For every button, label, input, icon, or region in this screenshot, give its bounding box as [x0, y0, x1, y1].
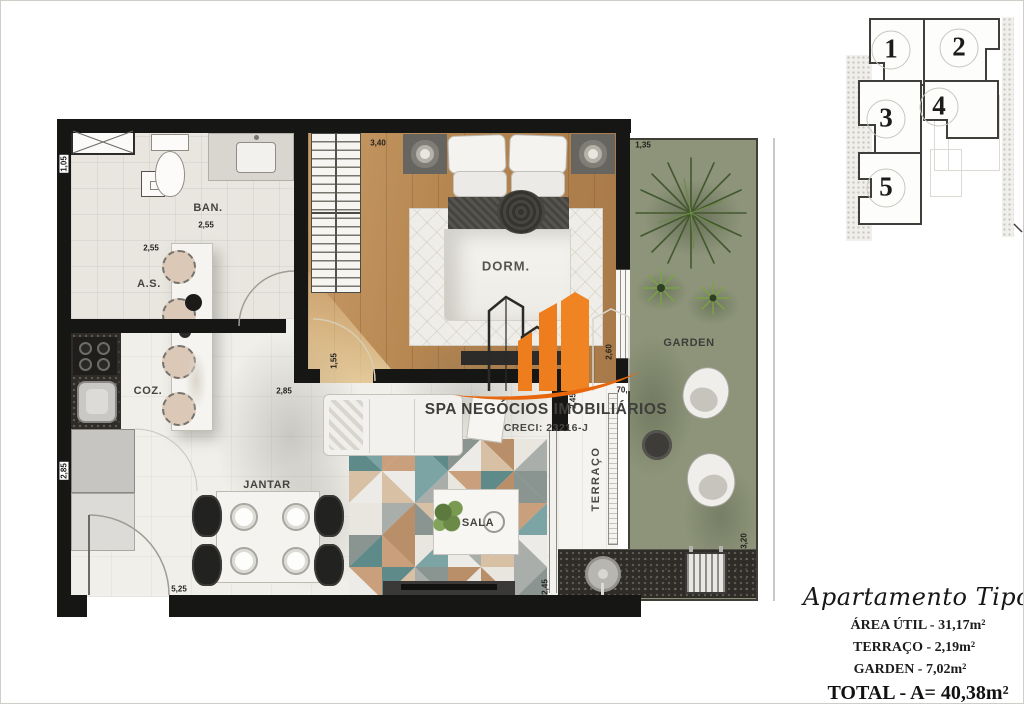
gourmet-round-sink [585, 556, 621, 592]
summary-title: Apartamento Tipo 02 - Gara [803, 583, 1024, 611]
balcony-outer-line [773, 138, 775, 601]
watermark-name: SPA NEGÓCIOS IMOBILIÁRIOS [425, 401, 667, 419]
wall-bedroom-bottom [373, 369, 558, 383]
bed-pillow [508, 134, 567, 174]
bed-pillow [447, 134, 506, 174]
refrigerator [71, 429, 135, 493]
dim-label: 3,40 [370, 139, 386, 148]
wall-bathroom-bedroom-divider [294, 119, 308, 369]
room-label-as: A.S. [137, 278, 161, 290]
appliance [71, 493, 135, 551]
toilet-tank [151, 134, 189, 151]
wall [169, 595, 641, 617]
dim-label: 2,55 [198, 221, 214, 230]
lounge-chair-seat [696, 472, 730, 502]
dim-label: 1,05 [60, 155, 69, 173]
burner [97, 358, 110, 371]
dim-label: 2,85 [276, 387, 292, 396]
watermark-creci: CRECI: 23216-J [504, 422, 589, 434]
bedroom-window [616, 269, 630, 359]
keyplan: 1 2 3 4 5 [834, 7, 1024, 247]
summary-terraco: TERRAÇO - 2,19m² [807, 640, 1021, 656]
dim-label: 1,35 [635, 141, 651, 150]
summary-total: TOTAL - A= 40,38m² [811, 682, 1024, 704]
dining-chair [314, 544, 344, 586]
vanity-faucet [254, 135, 259, 140]
room-label-terraco: TERRAÇO [590, 447, 602, 512]
room-label-coz: COZ. [134, 385, 163, 397]
sink-faucet [601, 583, 604, 595]
dining-chair [192, 495, 222, 537]
dim-label: 3,20 [740, 533, 749, 549]
keyplan-unit-number: 2 [952, 31, 966, 62]
wall-bedroom-right [616, 359, 630, 383]
window-pane-line [620, 270, 621, 358]
room-label-garden: GARDEN [663, 337, 714, 349]
lamp-left [420, 149, 430, 159]
wall-bathroom-bottom [57, 319, 286, 333]
lamp-right [588, 149, 598, 159]
place-setting [230, 547, 258, 575]
room-label-dorm: DORM. [482, 259, 530, 274]
wardrobe [311, 133, 361, 293]
sofa-cushion-line [369, 399, 370, 453]
sink-basin [86, 389, 108, 414]
place-setting [282, 547, 310, 575]
sink-drain [598, 569, 608, 579]
floorplan-image: BAN. A.S. COZ. DORM. JANTAR SALA TERRAÇO… [0, 0, 1024, 704]
summary-area-util: ÁREA ÚTIL - 31,17m² [811, 618, 1024, 634]
place-setting [282, 503, 310, 531]
vanity-sink [236, 142, 276, 173]
kitchen-sink [77, 381, 117, 423]
dim-label: 70, [616, 386, 627, 395]
dim-label: 2,45 [541, 579, 550, 595]
burner [79, 358, 92, 371]
bed-duvet [444, 229, 571, 321]
wall [57, 119, 631, 133]
tv [401, 584, 497, 590]
toilet-bowl [155, 151, 185, 197]
sofa-chaise-cushion [329, 400, 363, 450]
island-decor [185, 351, 207, 411]
plant-on-table [433, 497, 467, 535]
garden-side-table [642, 430, 672, 460]
cooktop [73, 337, 117, 375]
room-label-jantar: JANTAR [243, 479, 290, 491]
place-setting [230, 503, 258, 531]
keyplan-unit-number: 5 [879, 171, 893, 202]
lounge-chair-seat [687, 384, 721, 415]
garden-grass [628, 138, 758, 601]
window-pane-line [625, 270, 626, 358]
wall-bedroom-bottom [294, 369, 320, 383]
dim-label: 2,85 [60, 462, 69, 480]
room-label-sala: SALA [462, 517, 494, 529]
dining-chair [192, 544, 222, 586]
sofa-cushion-line [414, 399, 415, 453]
summary-garden: GARDEN - 7,02m² [803, 662, 1017, 678]
burner [97, 342, 110, 355]
dim-label: 2,60 [605, 344, 614, 360]
dim-label: 1,55 [330, 353, 339, 369]
coffee-maker [185, 294, 202, 311]
keyplan-unit-number: 3 [879, 102, 893, 133]
wall-bedroom-right [616, 119, 630, 269]
keyplan-unit-number: 4 [932, 90, 946, 121]
bar-stool [162, 250, 196, 284]
dim-label: 2,55 [143, 244, 159, 253]
bed-end-bench [461, 351, 561, 365]
wardrobe-rail [335, 134, 337, 292]
dining-chair [314, 495, 344, 537]
wall [57, 595, 87, 617]
dim-label: 5,25 [171, 585, 187, 594]
terrace-sliding-door [549, 431, 557, 593]
bed-pillow [453, 171, 507, 197]
room-label-ban: BAN. [193, 202, 222, 214]
grill-post [689, 546, 693, 552]
grill-post [719, 546, 723, 552]
burner [79, 342, 92, 355]
keyplan-unit-number: 1 [884, 33, 898, 64]
bed-bolster [497, 190, 545, 234]
grill [685, 552, 727, 594]
wall [57, 119, 71, 617]
